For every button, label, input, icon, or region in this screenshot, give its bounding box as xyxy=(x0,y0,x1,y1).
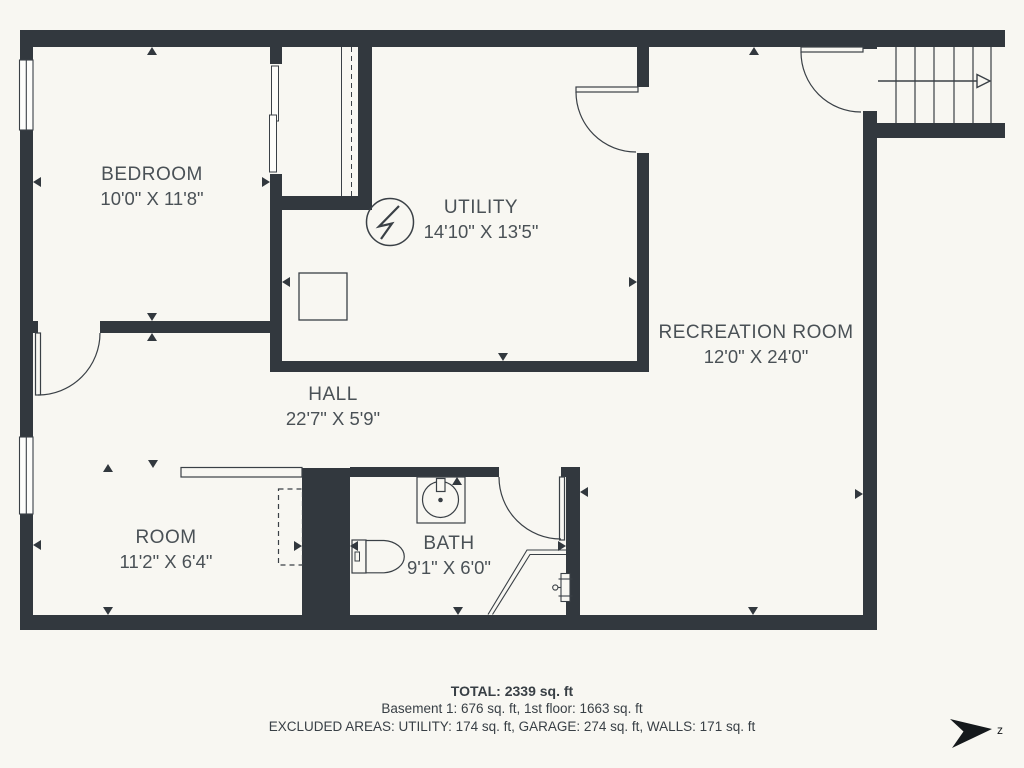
tick-marker xyxy=(855,489,863,499)
recroom-door-opening xyxy=(862,49,878,111)
room-label-bath: BATH 9'1" X 6'0" xyxy=(407,533,491,579)
toilet-icon xyxy=(352,540,404,573)
tick-marker xyxy=(629,277,637,287)
floor-plan: z BEDROOM 10'0" X 11'8" UTILITY 14'10" X… xyxy=(0,0,1024,768)
bedroom-name: BEDROOM xyxy=(100,164,203,186)
tick-marker xyxy=(580,487,588,497)
recroom-door-icon xyxy=(801,47,863,112)
room-name: ROOM xyxy=(120,527,213,549)
bedroom-window-icon xyxy=(20,60,34,130)
swing-doors xyxy=(36,47,864,540)
bath-dims: 9'1" X 6'0" xyxy=(407,557,491,579)
tick-marker xyxy=(103,607,113,615)
hall-name: HALL xyxy=(286,384,380,406)
electrical-panel-icon xyxy=(367,199,414,246)
tick-marker xyxy=(453,607,463,615)
bedroom-door-icon xyxy=(36,333,101,395)
water-heater-icon xyxy=(299,273,347,320)
tick-marker xyxy=(282,277,290,287)
room-label-recreation: RECREATION ROOM 12'0" X 24'0" xyxy=(658,322,853,368)
tick-marker xyxy=(294,541,302,551)
tick-marker xyxy=(262,177,270,187)
recreation-name: RECREATION ROOM xyxy=(658,322,853,344)
tick-marker xyxy=(452,477,462,485)
tick-marker xyxy=(147,47,157,55)
bath-door-icon xyxy=(499,477,565,540)
tick-marker xyxy=(147,333,157,341)
room-label-bedroom: BEDROOM 10'0" X 11'8" xyxy=(100,164,203,210)
room-label-hall: HALL 22'7" X 5'9" xyxy=(286,384,380,430)
room-window-icon xyxy=(20,437,34,514)
tick-marker xyxy=(749,47,759,55)
stairs-icon xyxy=(878,47,991,123)
hall-dims: 22'7" X 5'9" xyxy=(286,408,380,430)
tick-marker xyxy=(33,540,41,550)
bedroom-dims: 10'0" X 11'8" xyxy=(100,188,203,210)
bath-door-opening xyxy=(499,466,561,478)
shower-icon xyxy=(488,550,566,615)
dashed-appliance-outline xyxy=(279,489,303,565)
tick-marker xyxy=(33,177,41,187)
tick-marker xyxy=(147,313,157,321)
utility-door-opening xyxy=(636,87,650,153)
tick-marker xyxy=(498,353,508,361)
bath-name: BATH xyxy=(407,533,491,555)
plan-linework: z xyxy=(0,0,1024,768)
windows xyxy=(20,60,34,514)
utility-door-icon xyxy=(576,87,638,152)
shower-valve-icon xyxy=(553,574,573,602)
tick-marker xyxy=(148,460,158,468)
counter-half-wall xyxy=(181,468,302,478)
tick-marker xyxy=(748,607,758,615)
recreation-dims: 12'0" X 24'0" xyxy=(658,346,853,368)
utility-dims: 14'10" X 13'5" xyxy=(424,221,539,243)
bedroom-door-opening xyxy=(38,320,100,334)
door-openings xyxy=(38,49,878,478)
room-dims: 11'2" X 6'4" xyxy=(120,551,213,573)
excluded-areas-text: EXCLUDED AREAS: UTILITY: 174 sq. ft, GAR… xyxy=(0,718,1024,736)
area-summary: TOTAL: 2339 sq. ft Basement 1: 676 sq. f… xyxy=(0,682,1024,736)
tick-marker xyxy=(103,464,113,472)
utility-name: UTILITY xyxy=(424,197,539,219)
room-label-utility: UTILITY 14'10" X 13'5" xyxy=(424,197,539,243)
room-label-room: ROOM 11'2" X 6'4" xyxy=(120,527,213,573)
closet-lines xyxy=(342,47,352,196)
total-area-text: TOTAL: 2339 sq. ft xyxy=(0,682,1024,700)
floor-areas-text: Basement 1: 676 sq. ft, 1st floor: 1663 … xyxy=(0,700,1024,718)
